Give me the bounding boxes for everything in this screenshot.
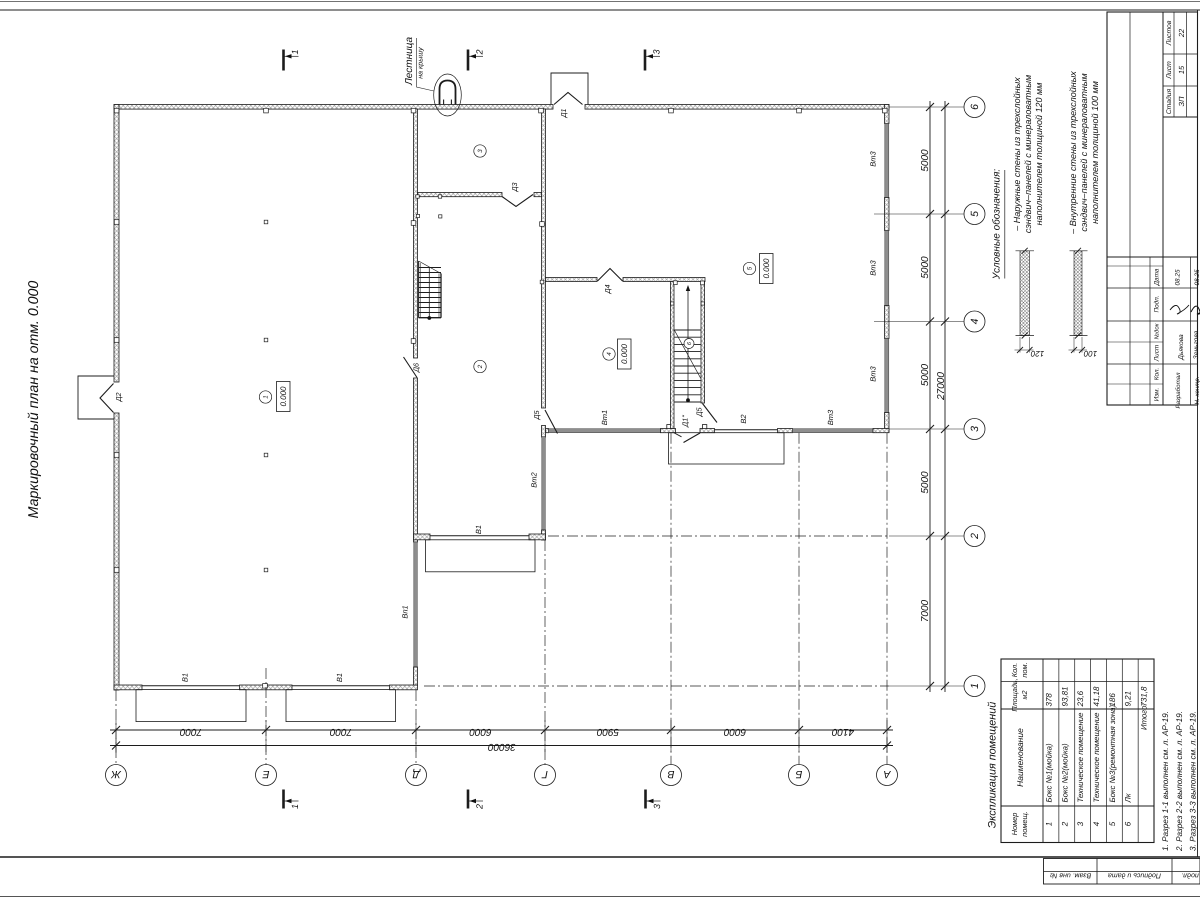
svg-text:В2: В2: [739, 414, 748, 424]
svg-text:2: 2: [475, 804, 485, 810]
svg-text:Лестница: Лестница: [404, 37, 415, 87]
svg-text:Вт3: Вт3: [869, 259, 878, 275]
svg-text:5000: 5000: [920, 149, 931, 172]
svg-text:1: 1: [290, 804, 300, 809]
svg-text:Д6: Д6: [412, 363, 421, 373]
svg-text:2: 2: [1060, 821, 1069, 827]
svg-text:Маркировочный план на отм. 0.0: Маркировочный план на отм. 0.000: [26, 281, 42, 519]
svg-text:Экспликация помещений: Экспликация помещений: [987, 702, 999, 828]
svg-text:2: 2: [969, 533, 981, 540]
svg-text:2: 2: [477, 364, 484, 369]
svg-text:22: 22: [1177, 29, 1186, 38]
svg-text:3: 3: [652, 804, 662, 809]
svg-text:120: 120: [1030, 349, 1044, 358]
svg-text:Лк: Лк: [1124, 793, 1133, 803]
svg-text:1. Разрез 1-1 выполнен см. л.: 1. Разрез 1-1 выполнен см. л. АР-19.: [1161, 711, 1170, 851]
svg-text:Взам. инв №: Взам. инв №: [1049, 872, 1091, 879]
svg-text:3: 3: [477, 149, 484, 153]
svg-text:В1: В1: [181, 673, 190, 682]
svg-text:А: А: [883, 768, 891, 780]
svg-text:Бокс №1(мойка): Бокс №1(мойка): [1044, 743, 1053, 802]
svg-text:сэндвич–панелей с минераловатн: сэндвич–панелей с минераловатным: [1023, 75, 1033, 233]
svg-text:7000: 7000: [920, 599, 931, 622]
svg-text:Н. контр.: Н. контр.: [1194, 377, 1200, 405]
svg-text:Бокс №3(ремонтная зона): Бокс №3(ремонтная зона): [1108, 705, 1117, 803]
svg-text:Д1": Д1": [681, 415, 690, 428]
svg-text:6000: 6000: [469, 726, 492, 737]
svg-text:2: 2: [475, 49, 485, 55]
svg-text:1: 1: [1044, 822, 1053, 826]
svg-text:6: 6: [969, 104, 981, 110]
svg-text:Д3: Д3: [510, 182, 519, 192]
svg-text:5: 5: [1108, 821, 1117, 826]
svg-text:ЗП: ЗП: [1177, 96, 1186, 107]
svg-text:15: 15: [1177, 65, 1186, 74]
svg-text:5: 5: [969, 211, 981, 217]
svg-text:Дата: Дата: [1154, 268, 1161, 286]
svg-text:1: 1: [290, 49, 300, 54]
svg-text:3: 3: [1076, 821, 1085, 826]
svg-text:Подпись и дата: Подпись и дата: [1108, 872, 1161, 880]
svg-text:Стадия: Стадия: [1166, 88, 1173, 114]
svg-text:Вт3: Вт3: [869, 150, 878, 166]
svg-text:Вт1: Вт1: [600, 410, 609, 425]
svg-text:Бокс №2(мойка): Бокс №2(мойка): [1060, 743, 1069, 802]
svg-text:186: 186: [1108, 693, 1117, 707]
svg-text:08.25: 08.25: [1175, 269, 1182, 285]
svg-text:3: 3: [969, 426, 981, 432]
svg-text:Лист: Лист: [1166, 61, 1173, 80]
svg-text:5: 5: [747, 266, 754, 270]
svg-text:Площадь,: Площадь,: [1010, 678, 1019, 711]
svg-text:Условные обозначения:: Условные обозначения:: [992, 169, 1003, 281]
svg-text:Техническое помещение: Техническое помещение: [1092, 712, 1101, 803]
svg-text:Изм.: Изм.: [1154, 388, 1161, 402]
svg-text:Подп.: Подп.: [1154, 295, 1161, 312]
svg-text:08.25: 08.25: [1194, 269, 1200, 285]
svg-text:4100: 4100: [831, 726, 854, 737]
svg-text:помещ.: помещ.: [1020, 811, 1029, 837]
svg-text:Д: Д: [412, 768, 421, 780]
svg-text:В: В: [667, 768, 674, 780]
svg-text:Е: Е: [262, 768, 270, 780]
svg-text:наполнителем толщиной 120 мм: наполнителем толщиной 120 мм: [1034, 83, 1044, 226]
svg-text:Зеньгова: Зеньгова: [1193, 330, 1200, 359]
svg-text:Листов: Листов: [1166, 20, 1173, 46]
svg-text:Вт3: Вт3: [869, 365, 878, 381]
svg-text:Кол.: Кол.: [1010, 663, 1019, 678]
svg-text:6000: 6000: [723, 726, 746, 737]
svg-text:на крышу: на крышу: [418, 47, 425, 79]
svg-text:3. Разрез 3-3 выполнен см. л.: 3. Разрез 3-3 выполнен см. л. АР-19.: [1189, 711, 1198, 851]
svg-text:5900: 5900: [596, 726, 619, 737]
svg-text:7000: 7000: [179, 726, 202, 737]
svg-text:6: 6: [1124, 821, 1133, 826]
svg-text:Вт2: Вт2: [530, 471, 539, 487]
svg-text:сэндвич–панелей с минераловатн: сэндвич–панелей с минераловатным: [1079, 73, 1089, 231]
svg-text:23,6: 23,6: [1076, 690, 1085, 707]
svg-text:5000: 5000: [920, 363, 931, 386]
svg-text:7000: 7000: [329, 726, 352, 737]
svg-text:наполнителем толщиной 100 мм: наполнителем толщиной 100 мм: [1090, 81, 1100, 224]
svg-text:4: 4: [969, 318, 981, 324]
svg-text:– Внутренние стены из трехслой: – Внутренние стены из трехслойных: [1068, 71, 1078, 235]
svg-text:3: 3: [652, 49, 662, 54]
svg-text:Наименование: Наименование: [1015, 728, 1025, 787]
svg-text:731,8: 731,8: [1140, 686, 1149, 707]
svg-text:Разработал: Разработал: [1175, 372, 1182, 409]
svg-text:№док: №док: [1154, 322, 1161, 339]
svg-text:Д5: Д5: [532, 409, 541, 420]
svg-text:27000: 27000: [936, 372, 947, 401]
svg-text:Б: Б: [795, 768, 802, 780]
svg-text:0.000: 0.000: [279, 386, 288, 407]
svg-text:Д2: Д2: [114, 392, 123, 402]
svg-text:В1: В1: [474, 525, 483, 534]
svg-text:9,21: 9,21: [1124, 691, 1133, 707]
svg-text:Техническое помещение: Техническое помещение: [1076, 712, 1085, 803]
svg-text:100: 100: [1083, 349, 1097, 358]
svg-text:Вт3: Вт3: [826, 409, 835, 425]
svg-text:Номер: Номер: [1010, 813, 1019, 836]
svg-text:Инв. № подл.: Инв. № подл.: [1181, 872, 1200, 880]
svg-text:Кол.: Кол.: [1154, 368, 1161, 381]
svg-text:2. Разрез 2-2 выполнен см. л.: 2. Разрез 2-2 выполнен см. л. АР-19.: [1175, 711, 1184, 852]
svg-text:Лист: Лист: [1154, 344, 1161, 362]
svg-text:– Наружные стены из трехслойны: – Наружные стены из трехслойных: [1012, 77, 1022, 232]
svg-text:Д5: Д5: [695, 406, 704, 417]
svg-text:0.000: 0.000: [620, 343, 629, 364]
svg-text:Д4: Д4: [603, 284, 612, 294]
svg-text:4: 4: [606, 352, 613, 356]
svg-text:Вп1: Вп1: [401, 605, 410, 618]
svg-text:5000: 5000: [920, 256, 931, 279]
svg-text:В1: В1: [335, 673, 344, 682]
svg-text:1: 1: [969, 683, 981, 689]
svg-text:Дьякова: Дьякова: [1178, 334, 1185, 361]
svg-text:м2: м2: [1020, 691, 1029, 700]
svg-text:4: 4: [1092, 821, 1101, 826]
svg-text:5000: 5000: [920, 471, 931, 494]
svg-text:36000: 36000: [488, 741, 516, 752]
svg-text:378: 378: [1044, 693, 1053, 707]
svg-text:0.000: 0.000: [762, 258, 771, 279]
svg-text:93,81: 93,81: [1060, 686, 1069, 706]
svg-text:Ж: Ж: [110, 768, 122, 780]
svg-text:41,18: 41,18: [1092, 686, 1101, 707]
svg-text:пом.: пом.: [1020, 662, 1029, 677]
svg-text:1: 1: [263, 395, 270, 398]
svg-text:Д1: Д1: [559, 108, 568, 118]
